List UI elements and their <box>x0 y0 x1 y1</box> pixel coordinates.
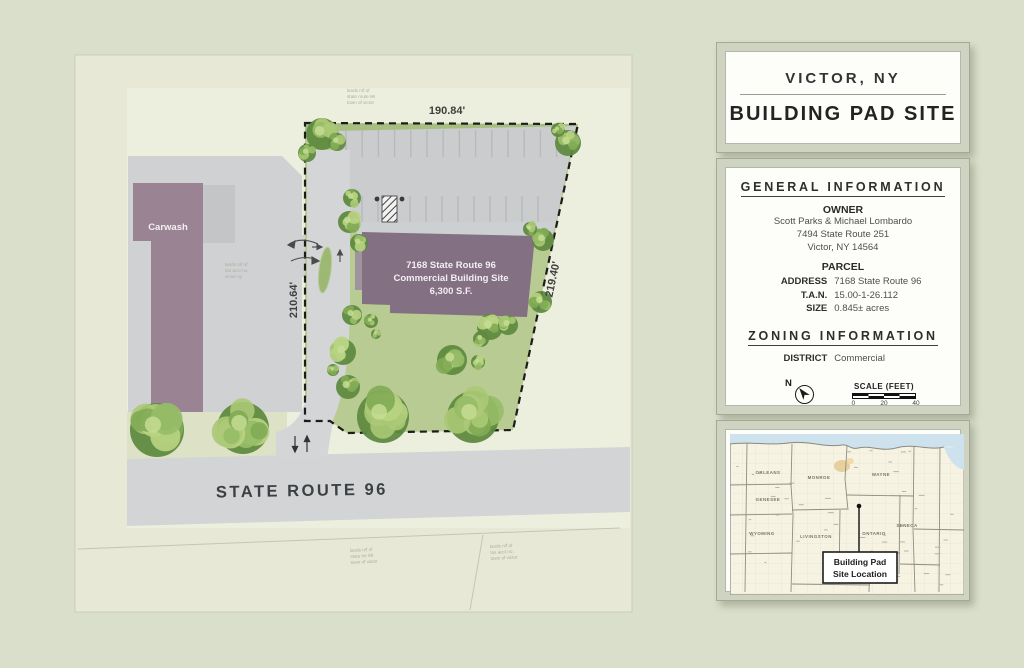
svg-text:lands n/f of: lands n/f of <box>225 262 248 267</box>
compass-needle-icon <box>792 382 815 405</box>
svg-text:ORLEANS: ORLEANS <box>756 470 781 475</box>
carwash-building-wing <box>151 239 203 427</box>
owner-heading: OWNER <box>734 204 952 216</box>
location-map: ORLEANS GENESEE WYOMING MONROE LIVINGSTO… <box>730 434 964 595</box>
scale-bar-ticks: 0 20 40 <box>852 400 916 409</box>
parcel-rows: ADDRESS 7168 State Route 96 T.A.N. 15.00… <box>734 275 952 315</box>
owner-line: Victor, NY 14564 <box>734 242 952 255</box>
svg-text:state route 96: state route 96 <box>347 94 376 99</box>
svg-text:LIVINGSTON: LIVINGSTON <box>800 534 832 539</box>
north-arrow: N <box>792 382 812 402</box>
owner-line: Scott Parks & Michael Lombardo <box>734 216 952 229</box>
svg-text:GENESEE: GENESEE <box>756 497 781 502</box>
district-row: DISTRICT Commercial <box>734 352 952 365</box>
svg-text:Site Location: Site Location <box>833 569 887 579</box>
svg-text:MONROE: MONROE <box>808 475 831 480</box>
title-divider <box>740 94 946 95</box>
svg-text:WAYNE: WAYNE <box>872 472 890 477</box>
general-info-heading: GENERAL INFORMATION <box>741 180 946 197</box>
parcel-row: ADDRESS 7168 State Route 96 <box>734 275 952 288</box>
zoning-info-heading: ZONING INFORMATION <box>748 329 938 346</box>
owner-line: 7494 State Route 251 <box>734 229 952 242</box>
svg-text:town of victor: town of victor <box>347 100 375 105</box>
accessible-symbol <box>375 197 380 202</box>
accessible-stall <box>382 196 397 222</box>
parking-lot <box>330 126 576 222</box>
carwash-label: Carwash <box>148 222 188 233</box>
scale-bar-title: SCALE (FEET) <box>852 382 916 391</box>
svg-text:lands n/f of: lands n/f of <box>347 88 370 93</box>
svg-text:SENECA: SENECA <box>896 523 918 528</box>
svg-text:ONTARIO: ONTARIO <box>862 531 886 536</box>
location-map-panel: ORLEANS GENESEE WYOMING MONROE LIVINGSTO… <box>716 420 970 601</box>
site-plan: Carwash STATE ROUTE 96 7168 State Route … <box>0 0 710 668</box>
north-label: N <box>785 378 792 389</box>
svg-text:WYOMING: WYOMING <box>749 531 775 536</box>
carwash-annex <box>203 185 235 243</box>
svg-text:Building Pad: Building Pad <box>834 557 887 567</box>
dim-top: 190.84' <box>429 105 466 117</box>
accessible-symbol <box>400 197 405 202</box>
info-panel: GENERAL INFORMATION OWNER Scott Parks & … <box>716 158 970 415</box>
city-label: VICTOR, NY <box>785 70 901 87</box>
scale-bar-graphic <box>852 393 916 399</box>
parcel-row: T.A.N. 15.00-1-26.112 <box>734 289 952 302</box>
page-title: BUILDING PAD SITE <box>730 103 957 126</box>
parcel-heading: PARCEL <box>734 261 952 273</box>
svg-text:tax acct no.: tax acct no. <box>225 268 249 273</box>
title-panel: VICTOR, NY BUILDING PAD SITE <box>716 42 970 153</box>
road-label: STATE ROUTE 96 <box>216 481 388 502</box>
svg-text:victor ny: victor ny <box>225 274 243 279</box>
scale-bar: SCALE (FEET) 0 20 40 <box>852 382 916 409</box>
parcel-row: SIZE 0.845± acres <box>734 302 952 315</box>
svg-text:7168 State Route 96: 7168 State Route 96 <box>406 260 496 271</box>
svg-text:Commercial Building Site: Commercial Building Site <box>393 273 508 284</box>
svg-text:6,300 S.F.: 6,300 S.F. <box>430 286 473 297</box>
dim-left: 210.64' <box>288 281 300 318</box>
